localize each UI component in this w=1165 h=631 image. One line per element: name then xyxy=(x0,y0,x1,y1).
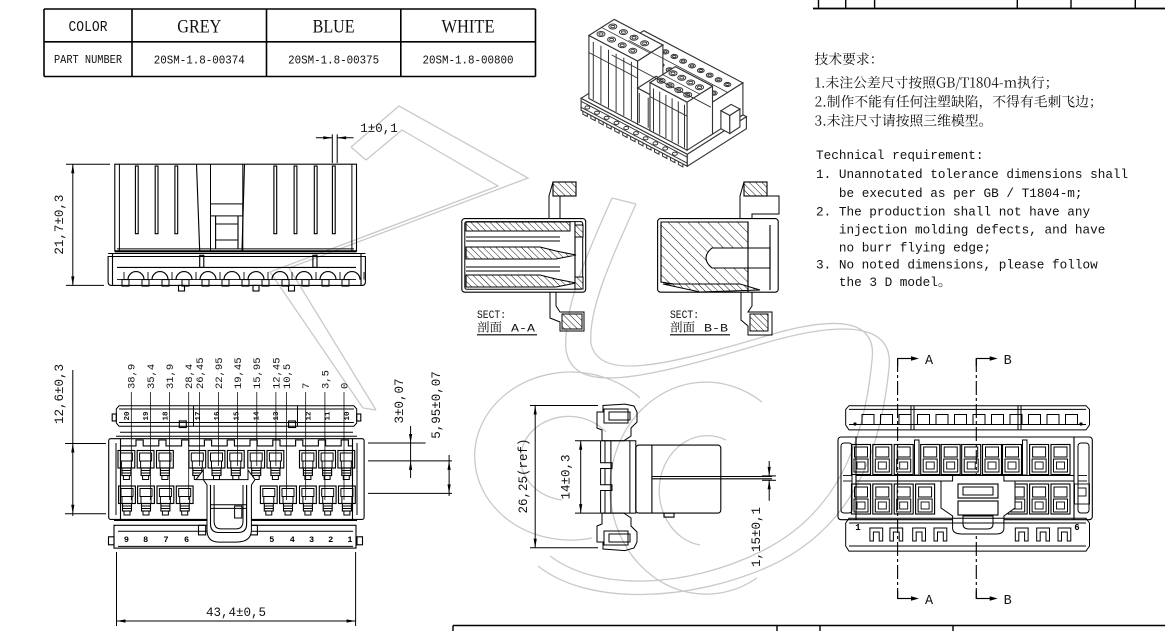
svg-text:2: 2 xyxy=(328,535,333,545)
svg-text:31,9: 31,9 xyxy=(165,364,177,389)
svg-text:1: 1 xyxy=(347,535,352,545)
svg-text:14±0,3: 14±0,3 xyxy=(560,454,574,499)
svg-text:26,25(ref): 26,25(ref) xyxy=(517,438,531,513)
svg-text:A: A xyxy=(925,354,934,369)
svg-text:3: 3 xyxy=(309,535,314,545)
svg-text:injection molding defects, and: injection molding defects, and have xyxy=(839,223,1105,238)
svg-text:20SM-1.8-00375: 20SM-1.8-00375 xyxy=(288,54,379,68)
svg-text:2. The production shall not ha: 2. The production shall not have any xyxy=(816,205,1090,220)
svg-text:Technical requirement:: Technical requirement: xyxy=(816,148,984,163)
svg-text:17: 17 xyxy=(195,411,203,420)
svg-text:12,6±0,3: 12,6±0,3 xyxy=(53,364,67,424)
svg-text:10: 10 xyxy=(344,411,352,421)
svg-text:26,45: 26,45 xyxy=(195,357,207,389)
svg-text:7: 7 xyxy=(164,535,169,545)
svg-text:COLOR: COLOR xyxy=(69,19,108,36)
svg-text:14: 14 xyxy=(254,411,262,421)
svg-text:10,5: 10,5 xyxy=(282,364,294,389)
svg-text:20SM-1.8-00374: 20SM-1.8-00374 xyxy=(154,54,245,68)
svg-text:22,95: 22,95 xyxy=(214,357,226,389)
svg-text:3,5: 3,5 xyxy=(320,370,332,389)
svg-text:5: 5 xyxy=(269,535,274,545)
svg-text:0: 0 xyxy=(339,383,351,389)
svg-text:20: 20 xyxy=(124,411,132,421)
svg-text:B: B xyxy=(1004,594,1012,609)
svg-text:3±0,07: 3±0,07 xyxy=(393,378,407,423)
svg-text:21,7±0,3: 21,7±0,3 xyxy=(53,195,67,255)
svg-text:A-A: A-A xyxy=(511,324,535,336)
svg-text:16: 16 xyxy=(214,411,222,421)
svg-text:20SM-1.8-00800: 20SM-1.8-00800 xyxy=(423,54,514,68)
svg-text:38,9: 38,9 xyxy=(127,364,139,389)
svg-text:15,95: 15,95 xyxy=(252,357,264,389)
svg-text:BLUE: BLUE xyxy=(313,17,355,38)
svg-text:6: 6 xyxy=(184,535,189,545)
svg-text:1±0,1: 1±0,1 xyxy=(360,122,398,136)
svg-text:1. Unannotated tolerance dimen: 1. Unannotated tolerance dimensions shal… xyxy=(816,167,1128,182)
svg-text:19,45: 19,45 xyxy=(233,357,245,389)
svg-text:WHITE: WHITE xyxy=(442,17,495,38)
svg-text:SECT:: SECT: xyxy=(477,310,506,322)
svg-text:43,4±0,5: 43,4±0,5 xyxy=(206,606,266,620)
svg-text:GREY: GREY xyxy=(177,17,221,38)
svg-text:3. No noted dimensions, please: 3. No noted dimensions, please follow xyxy=(816,258,1098,273)
svg-text:7: 7 xyxy=(301,383,313,389)
svg-text:19: 19 xyxy=(143,411,151,421)
svg-text:B: B xyxy=(1004,354,1012,369)
svg-text:no burr flying edge;: no burr flying edge; xyxy=(839,241,991,256)
svg-text:11: 11 xyxy=(325,411,333,421)
svg-text:1,15±0,1: 1,15±0,1 xyxy=(750,507,764,567)
svg-text:be executed as per GB / T1804-: be executed as per GB / T1804-m; xyxy=(839,186,1083,201)
svg-text:PART NUMBER: PART NUMBER xyxy=(54,53,122,67)
svg-text:18: 18 xyxy=(162,411,170,421)
svg-text:35,4: 35,4 xyxy=(146,364,158,389)
svg-text:4: 4 xyxy=(290,535,295,545)
svg-text:12: 12 xyxy=(305,411,313,421)
svg-text:1: 1 xyxy=(855,523,861,533)
svg-text:SECT:: SECT: xyxy=(670,310,699,322)
svg-text:8: 8 xyxy=(143,535,148,545)
svg-text:6: 6 xyxy=(1074,523,1079,533)
svg-text:the 3 D model: the 3 D model xyxy=(839,275,938,290)
svg-text:9: 9 xyxy=(124,535,129,545)
svg-text:13: 13 xyxy=(273,411,281,421)
svg-text:B-B: B-B xyxy=(704,324,728,336)
svg-text:A: A xyxy=(925,594,934,609)
svg-text:5,95±0,07: 5,95±0,07 xyxy=(430,371,444,439)
